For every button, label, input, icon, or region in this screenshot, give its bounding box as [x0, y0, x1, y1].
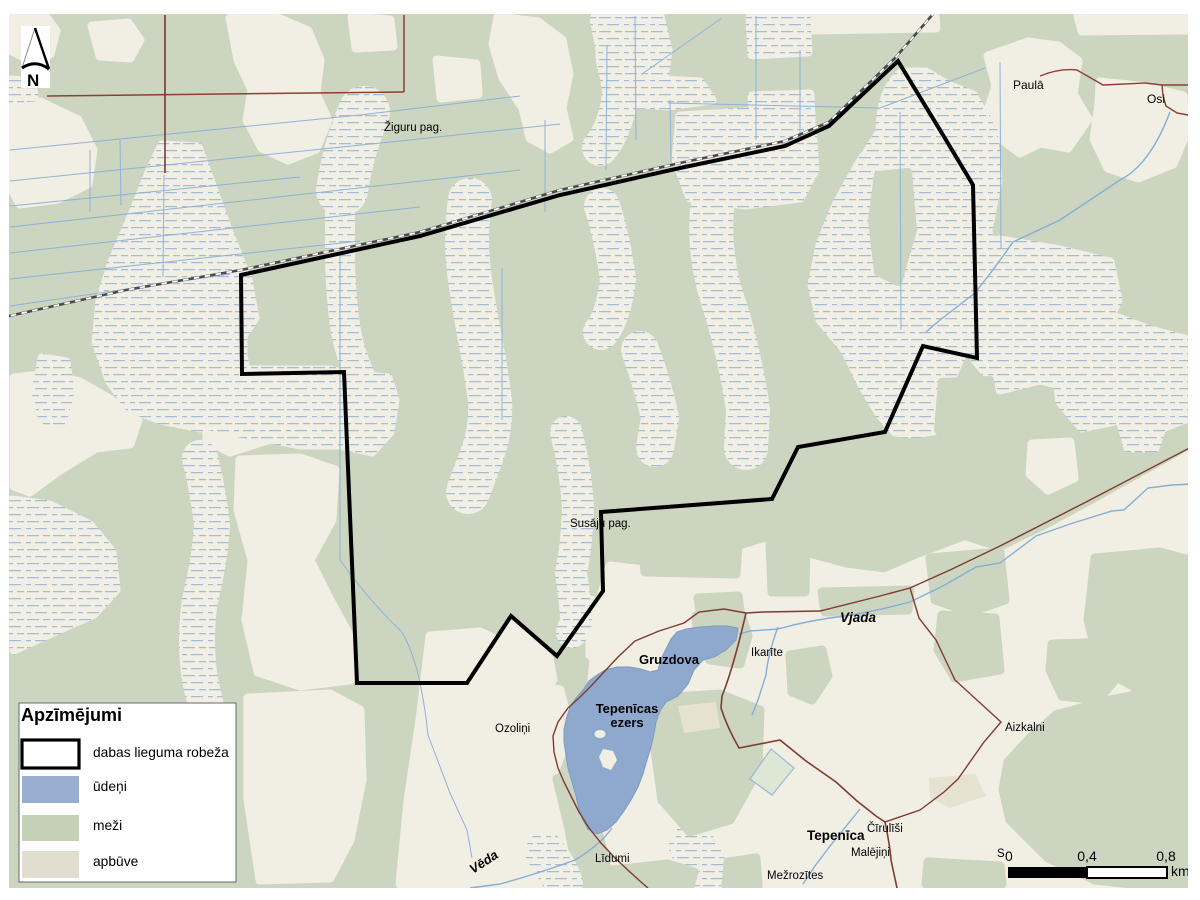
svg-text:Tepenīcas: Tepenīcas	[596, 701, 659, 716]
svg-text:S: S	[997, 848, 1005, 860]
svg-text:Ozoliņi: Ozoliņi	[495, 723, 530, 735]
svg-text:Ikarīte: Ikarīte	[751, 647, 783, 659]
svg-text:ezers: ezers	[610, 715, 643, 730]
svg-text:Žiguru pag.: Žiguru pag.	[384, 121, 442, 134]
svg-text:Tepenīca: Tepenīca	[807, 828, 865, 843]
svg-text:Vjada: Vjada	[840, 610, 877, 625]
svg-text:Mežrozītes: Mežrozītes	[767, 870, 823, 882]
svg-text:km: km	[1171, 863, 1190, 879]
svg-text:0: 0	[1005, 848, 1013, 864]
svg-text:0,4: 0,4	[1077, 848, 1097, 864]
svg-text:N: N	[27, 71, 39, 90]
svg-text:dabas lieguma robeža: dabas lieguma robeža	[93, 745, 229, 760]
svg-text:Osi: Osi	[1147, 92, 1165, 106]
svg-text:Susāju pag.: Susāju pag.	[570, 518, 631, 530]
svg-text:Aizkalni: Aizkalni	[1005, 722, 1045, 734]
svg-text:Paulā: Paulā	[1013, 78, 1044, 92]
svg-text:ūdeņi: ūdeņi	[93, 779, 127, 794]
svg-text:0,8: 0,8	[1156, 848, 1176, 864]
svg-text:Malējiņi: Malējiņi	[851, 847, 890, 859]
svg-text:Apzīmējumi: Apzīmējumi	[21, 705, 122, 725]
svg-text:Līdumi: Līdumi	[595, 853, 630, 865]
svg-text:Gruzdova: Gruzdova	[639, 652, 700, 667]
svg-text:meži: meži	[93, 818, 122, 833]
svg-text:apbūve: apbūve	[93, 854, 139, 869]
svg-text:Čīrulīši: Čīrulīši	[867, 822, 903, 835]
